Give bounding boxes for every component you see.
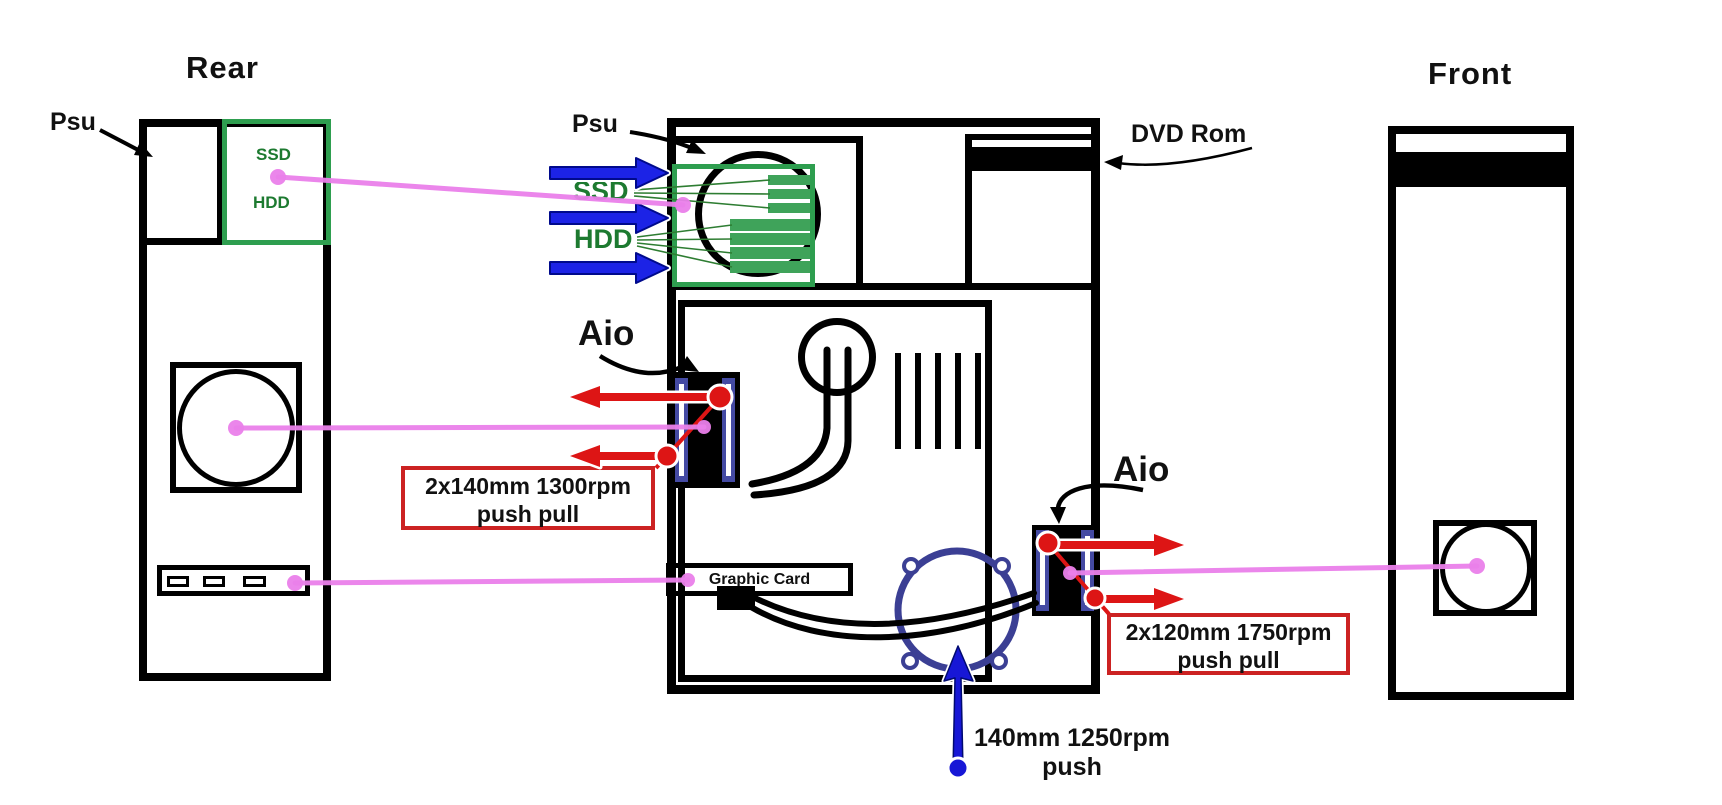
spec-leader-lines — [656, 397, 1109, 614]
pc-airflow-diagram: Rear Psu SSD HDD — [0, 0, 1722, 805]
bottom-fan-push-arrow — [944, 646, 973, 778]
intake-airflow-arrows — [550, 158, 668, 283]
aio-front-fan-dot — [1085, 588, 1105, 608]
dvd-arrow — [1104, 148, 1252, 170]
pink-connector-dots — [228, 169, 1485, 591]
aio-rear-fan-dot — [708, 385, 732, 409]
aio-front-fan-dot — [1037, 532, 1059, 554]
aio-rear-arrow — [600, 356, 699, 373]
gpu-aio-tubes — [751, 593, 1036, 637]
bottom-fan-screw-hole — [995, 559, 1009, 573]
annotation-overlay — [0, 0, 1722, 805]
bottom-fan-screw-hole — [992, 654, 1006, 668]
psu-side-arrow — [630, 132, 706, 154]
psu-rear-arrow — [100, 130, 153, 157]
cpu-aio-tubes — [752, 350, 848, 495]
bottom-fan-screw-hole — [904, 559, 918, 573]
aio-rear-fan-dot — [656, 445, 678, 467]
aio-front-arrow — [1050, 485, 1143, 524]
pink-connector-lines — [236, 177, 1477, 583]
bottom-fan-screw-hole — [903, 654, 917, 668]
